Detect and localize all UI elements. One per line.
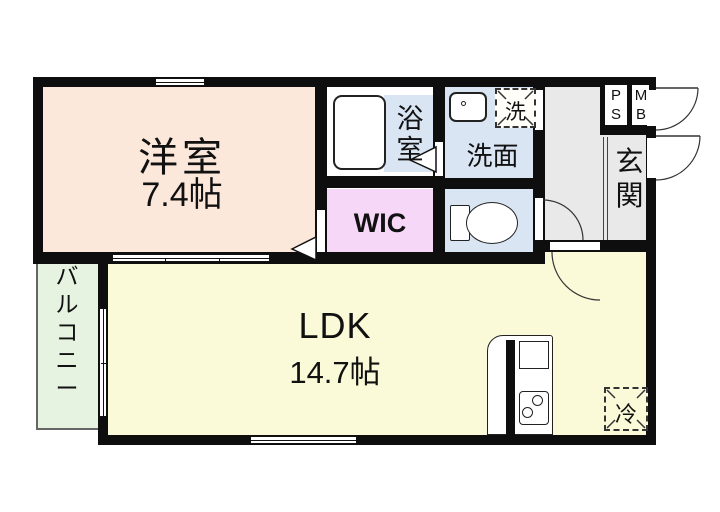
wall-washroom-bottom — [433, 178, 545, 189]
kitchen-sink-icon — [519, 341, 549, 369]
sliding-door-yoshitsu-ldk — [112, 254, 270, 262]
label-genkan: 玄関 — [614, 145, 645, 212]
wall-bottom — [98, 435, 656, 445]
stove-burner-2 — [522, 407, 533, 418]
wall-mid-horizontal — [33, 252, 545, 264]
label-mb: MB — [633, 87, 649, 125]
sink-faucet-dot — [461, 101, 466, 106]
label-fridge: 冷 — [604, 397, 648, 429]
stove-burner-1 — [532, 395, 543, 406]
label-washer: 洗 — [495, 96, 536, 126]
window-ldk-bottom — [250, 436, 357, 444]
bathtub-icon — [333, 95, 386, 170]
wall-top — [33, 77, 656, 87]
kitchen-partition — [506, 340, 515, 435]
label-yoshitsu-size: 7.4帖 — [102, 167, 262, 216]
room-ldk-step — [545, 252, 646, 266]
label-ldk: LDK — [255, 305, 415, 347]
door-gap-entrance — [647, 138, 656, 178]
door-gap-washroom — [535, 90, 543, 130]
label-wic: WIC — [330, 208, 430, 239]
label-ldk-size: 14.7帖 — [255, 347, 415, 392]
window-ldk-balcony — [99, 308, 107, 417]
door-gap-ldk — [550, 242, 600, 250]
door-gap-bathroom — [435, 142, 443, 176]
sink-icon — [449, 92, 487, 122]
window-yoshitsu-top — [155, 78, 205, 86]
label-balcony: バルコニー — [54, 262, 80, 402]
floorplan: 洋室 7.4帖 LDK 14.7帖 WIC 浴室 洗面 玄関 バルコニー PS … — [0, 0, 720, 512]
wall-left — [33, 77, 43, 252]
wall-bath-bottom — [315, 176, 445, 188]
label-ps: PS — [608, 87, 624, 125]
label-washroom: 洗面 — [445, 136, 540, 173]
door-gap-toilet — [535, 198, 543, 240]
label-bathroom: 浴室 — [395, 104, 425, 166]
genkan-step-line — [603, 137, 608, 240]
door-gap-wic — [317, 210, 325, 252]
toilet-bowl-icon — [466, 202, 518, 244]
